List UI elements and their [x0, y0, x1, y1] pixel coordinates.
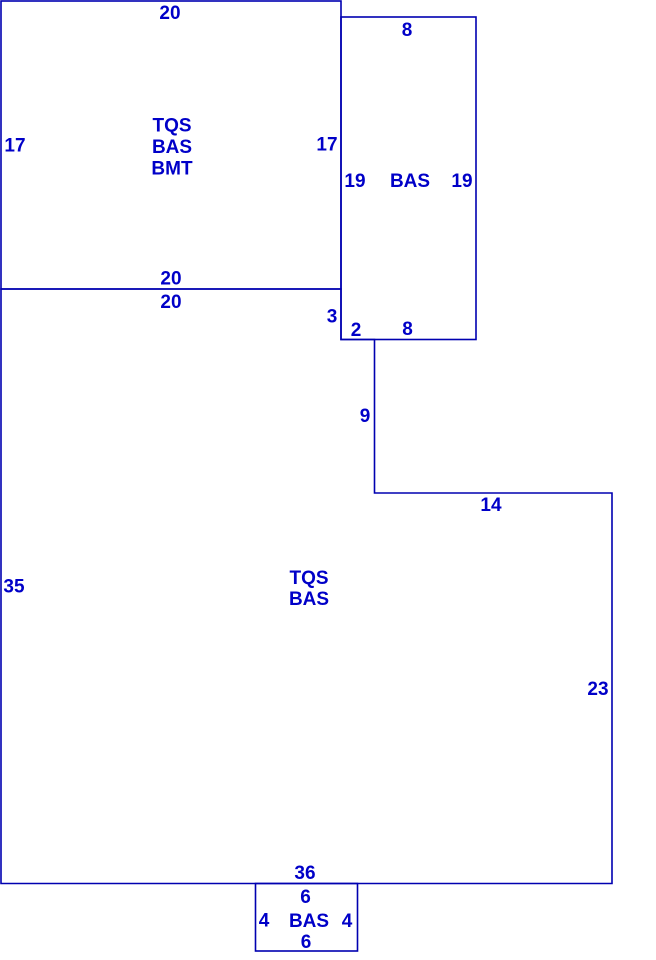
svg-text:19: 19 [451, 171, 472, 192]
svg-text:8: 8 [402, 319, 413, 340]
svg-text:35: 35 [3, 577, 25, 598]
svg-text:14: 14 [480, 495, 502, 516]
svg-text:17: 17 [316, 135, 337, 156]
svg-text:TQS: TQS [152, 116, 191, 137]
svg-text:8: 8 [402, 20, 413, 41]
svg-text:23: 23 [587, 679, 608, 700]
svg-text:4: 4 [259, 911, 270, 932]
svg-text:9: 9 [360, 406, 371, 427]
svg-text:6: 6 [300, 887, 311, 908]
svg-text:20: 20 [159, 3, 180, 24]
svg-text:2: 2 [351, 320, 362, 341]
svg-text:19: 19 [344, 171, 365, 192]
svg-text:17: 17 [4, 136, 25, 157]
svg-text:BAS: BAS [289, 911, 329, 932]
svg-text:6: 6 [301, 932, 312, 953]
svg-text:TQS: TQS [289, 568, 328, 589]
svg-text:36: 36 [294, 863, 315, 884]
svg-text:BAS: BAS [152, 137, 192, 158]
svg-text:20: 20 [160, 269, 181, 290]
svg-text:3: 3 [327, 307, 338, 328]
svg-text:BMT: BMT [151, 159, 193, 180]
svg-text:20: 20 [160, 292, 181, 313]
svg-text:BAS: BAS [390, 171, 430, 192]
svg-text:4: 4 [342, 911, 353, 932]
svg-text:BAS: BAS [289, 589, 329, 610]
